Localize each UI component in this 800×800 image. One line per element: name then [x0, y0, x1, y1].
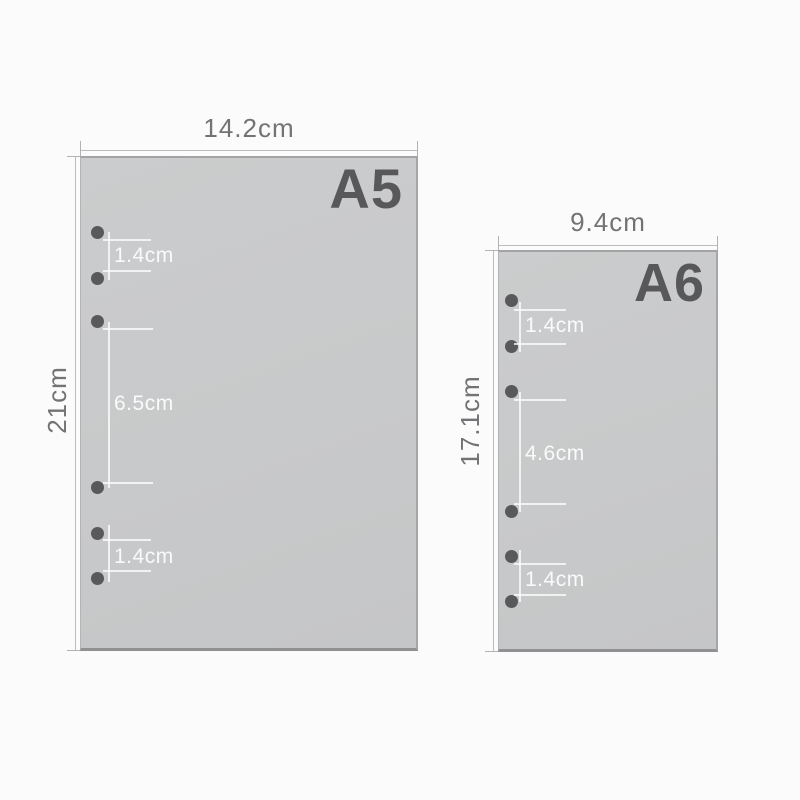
- spacing-bracket-line: [103, 328, 153, 330]
- spacing-label: 1.4cm: [525, 316, 585, 336]
- sheet-a5: A5 1.4cm 6.5cm 1.4cm: [80, 156, 418, 651]
- a5-height-label: 21cm: [43, 366, 71, 434]
- spacing-bracket-line: [514, 309, 566, 311]
- a5-height-dimension-line: [75, 156, 76, 651]
- spacing-label: 4.6cm: [525, 444, 585, 464]
- a6-size-title: A6: [634, 255, 705, 312]
- spacing-label: 1.4cm: [114, 246, 174, 266]
- binder-hole: [505, 505, 518, 518]
- spacing-bracket-line: [514, 503, 566, 505]
- sheet-a6: A6 1.4cm 4.6cm 1.4cm: [498, 250, 718, 652]
- spacing-bracket-line: [103, 482, 153, 484]
- spacing-bracket-line: [519, 392, 521, 512]
- a5-width-label: 14.2cm: [80, 114, 418, 142]
- spacing-bracket-line: [514, 594, 566, 596]
- binder-hole: [505, 595, 518, 608]
- a6-height-label: 17.1cm: [456, 375, 484, 466]
- spacing-bracket-line: [514, 399, 566, 401]
- spacing-label: 6.5cm: [114, 394, 174, 414]
- spacing-bracket-line: [103, 270, 151, 272]
- a5-width-dimension-tick-right: [417, 141, 418, 157]
- spacing-bracket-line: [514, 563, 566, 565]
- a5-size-title: A5: [329, 160, 403, 219]
- binder-hole: [91, 315, 104, 328]
- spacing-bracket-line: [514, 343, 566, 345]
- a6-height-dimension-line: [493, 250, 494, 652]
- binder-hole: [505, 385, 518, 398]
- a5-width-dimension-tick-left: [80, 141, 81, 157]
- binder-hole: [505, 294, 518, 307]
- spacing-bracket-line: [108, 322, 110, 488]
- spacing-label: 1.4cm: [525, 570, 585, 590]
- binder-hole: [91, 226, 104, 239]
- a6-width-dimension-line: [498, 245, 718, 246]
- spacing-bracket-line: [103, 570, 151, 572]
- spacing-bracket-line: [103, 239, 151, 241]
- a5-width-dimension-line: [80, 150, 418, 151]
- paper-size-diagram: 14.2cm 21cm A5 1.4cm 6.5cm 1.4cm 9.4cm: [0, 0, 800, 800]
- a6-width-label: 9.4cm: [498, 208, 718, 236]
- binder-hole: [505, 550, 518, 563]
- binder-hole: [505, 340, 518, 353]
- binder-hole: [91, 272, 104, 285]
- binder-hole: [91, 572, 104, 585]
- spacing-label: 1.4cm: [114, 547, 174, 567]
- spacing-bracket-line: [108, 525, 110, 582]
- spacing-bracket-line: [103, 539, 151, 541]
